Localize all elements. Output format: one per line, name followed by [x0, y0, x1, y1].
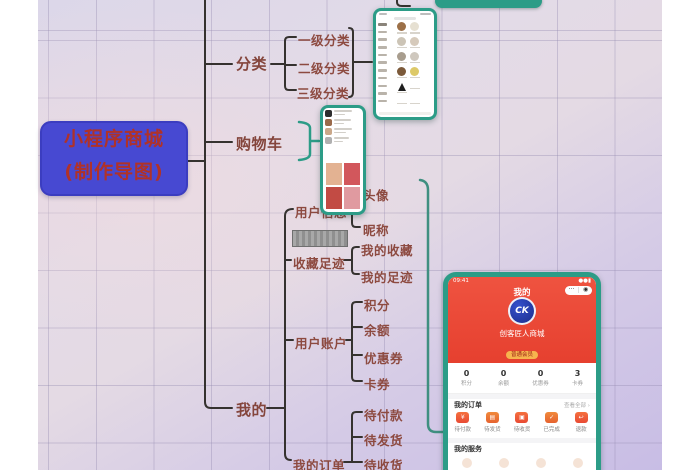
pending-receipt-icon: ▣ — [515, 412, 528, 423]
location-icon: ◉ — [545, 373, 550, 379]
node-cart[interactable]: 购物车 — [236, 133, 283, 154]
completed-icon: ✓ — [545, 412, 558, 423]
cropped-phone-edge — [435, 0, 542, 8]
capsule-more-icon: ··· — [569, 287, 575, 293]
node-account[interactable]: 用户账户 — [295, 333, 347, 352]
services-row — [448, 455, 596, 470]
node-my-orders[interactable]: 我的订单 — [293, 455, 345, 470]
services-section-title: 我的服务 — [454, 444, 482, 454]
node-my-collection[interactable]: 我的收藏 — [361, 240, 413, 259]
miniprogram-capsule: ··· ◉ — [565, 286, 592, 296]
root-title-line1: 小程序商城 — [42, 123, 186, 156]
orders-section-title: 我的订单 — [454, 400, 482, 410]
order-status-row: ¥ 待付款 ▤ 待发货 ▣ 待收货 ✓ 已完成 ↩ 退款 — [448, 411, 596, 438]
category-page-screenshot — [373, 8, 437, 120]
profile-header: 09:41 ●●▮ 我的 ··· ◉ CK 创客匠人商城 普通会员 — [448, 277, 596, 363]
node-nickname[interactable]: 昵称 — [363, 220, 389, 239]
profile-avatar: CK — [508, 297, 536, 325]
mindmap-screenshot: 小程序商城 (制作导图) 分类 一级分类 二级分类 三级分类 购物车 我的 用户… — [0, 0, 700, 470]
pending-shipment-icon: ▤ — [486, 412, 499, 423]
phone-a-statusbar — [376, 11, 434, 15]
profile-username: 创客匠人商城 — [448, 328, 596, 339]
refund-icon: ↩ — [575, 412, 588, 423]
cart-page-screenshot — [320, 105, 366, 215]
root-title-line2: (制作导图) — [42, 156, 186, 189]
node-mine[interactable]: 我的 — [236, 399, 267, 420]
phone-a-category-sidebar — [376, 21, 392, 108]
node-avatar[interactable]: 头像 — [363, 185, 389, 204]
node-my-footprint[interactable]: 我的足迹 — [361, 267, 413, 286]
orders-see-all-link: 查看全部 › — [564, 401, 590, 409]
member-badge: 普通会员 — [506, 351, 538, 360]
heart-icon: ♥ — [471, 373, 476, 379]
phone-b-recommend-grid — [325, 162, 361, 210]
redacted-label — [292, 230, 348, 247]
node-points[interactable]: 积分 — [364, 295, 390, 314]
profile-page-screenshot: 09:41 ●●▮ 我的 ··· ◉ CK 创客匠人商城 普通会员 — [443, 272, 601, 470]
header-stat-address: 4 ◉ 收货地址 — [522, 363, 596, 380]
node-category-level1[interactable]: 一级分类 — [298, 30, 350, 49]
phone-a-product-grid — [392, 21, 434, 108]
brand-logo-text: CK — [515, 306, 529, 316]
node-pending-receipt[interactable]: 待收货 — [364, 455, 403, 470]
node-category-level3[interactable]: 三级分类 — [297, 83, 349, 102]
node-pending-shipment[interactable]: 待发货 — [364, 430, 403, 449]
node-cards[interactable]: 卡券 — [364, 374, 390, 393]
phone-a-tabbar — [379, 112, 431, 115]
header-stat-collection: 2 ♥ 我的收藏 — [448, 363, 522, 380]
capsule-target-icon: ◉ — [583, 287, 588, 293]
node-category[interactable]: 分类 — [236, 53, 267, 74]
node-favorites[interactable]: 收藏足迹 — [293, 253, 345, 272]
node-coupons[interactable]: 优惠券 — [364, 348, 403, 367]
node-category-level2[interactable]: 二级分类 — [298, 58, 350, 77]
node-balance[interactable]: 余额 — [364, 320, 390, 339]
root-node[interactable]: 小程序商城 (制作导图) — [40, 121, 188, 196]
phone-a-searchbar — [394, 17, 416, 20]
node-pending-payment[interactable]: 待付款 — [364, 405, 403, 424]
pending-payment-icon: ¥ — [456, 412, 469, 423]
